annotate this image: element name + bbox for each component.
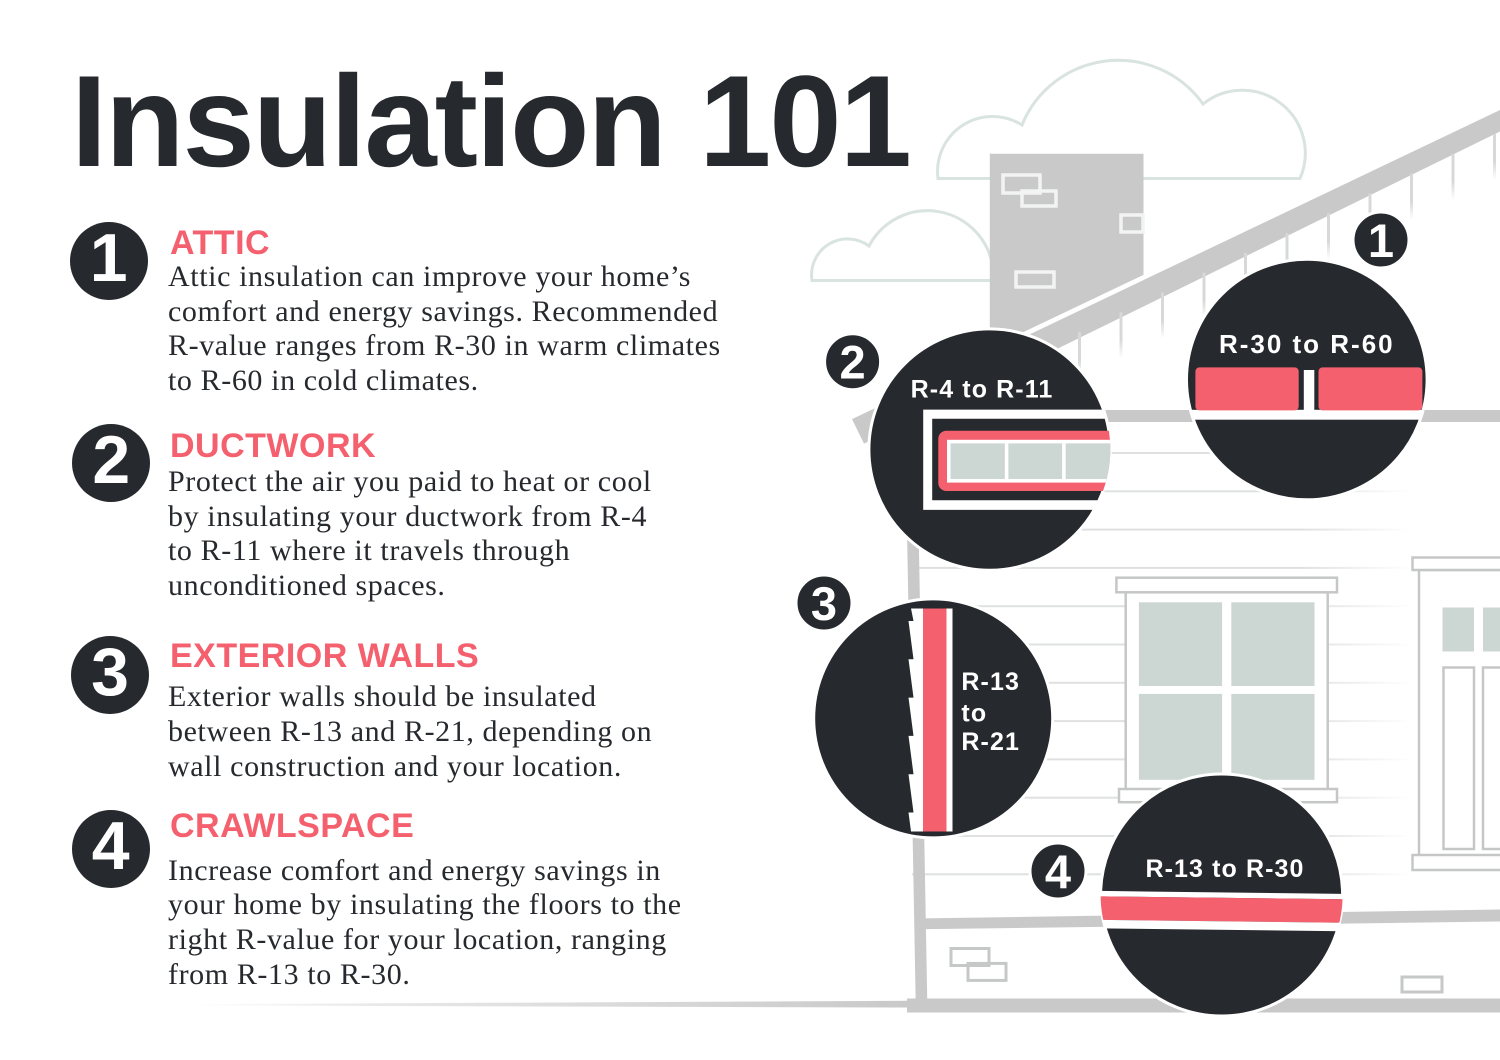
svg-text:R-30 to R-60: R-30 to R-60: [1219, 329, 1395, 359]
svg-text:R-21: R-21: [961, 728, 1020, 756]
svg-text:4: 4: [1045, 845, 1071, 898]
svg-text:3: 3: [811, 577, 837, 630]
svg-text:R-4 to R-11: R-4 to R-11: [911, 376, 1054, 404]
svg-text:R-13: R-13: [961, 668, 1020, 696]
svg-text:to: to: [961, 700, 987, 728]
svg-text:R-13 to R-30: R-13 to R-30: [1145, 855, 1304, 883]
svg-text:2: 2: [840, 336, 866, 389]
svg-text:1: 1: [1368, 214, 1394, 267]
